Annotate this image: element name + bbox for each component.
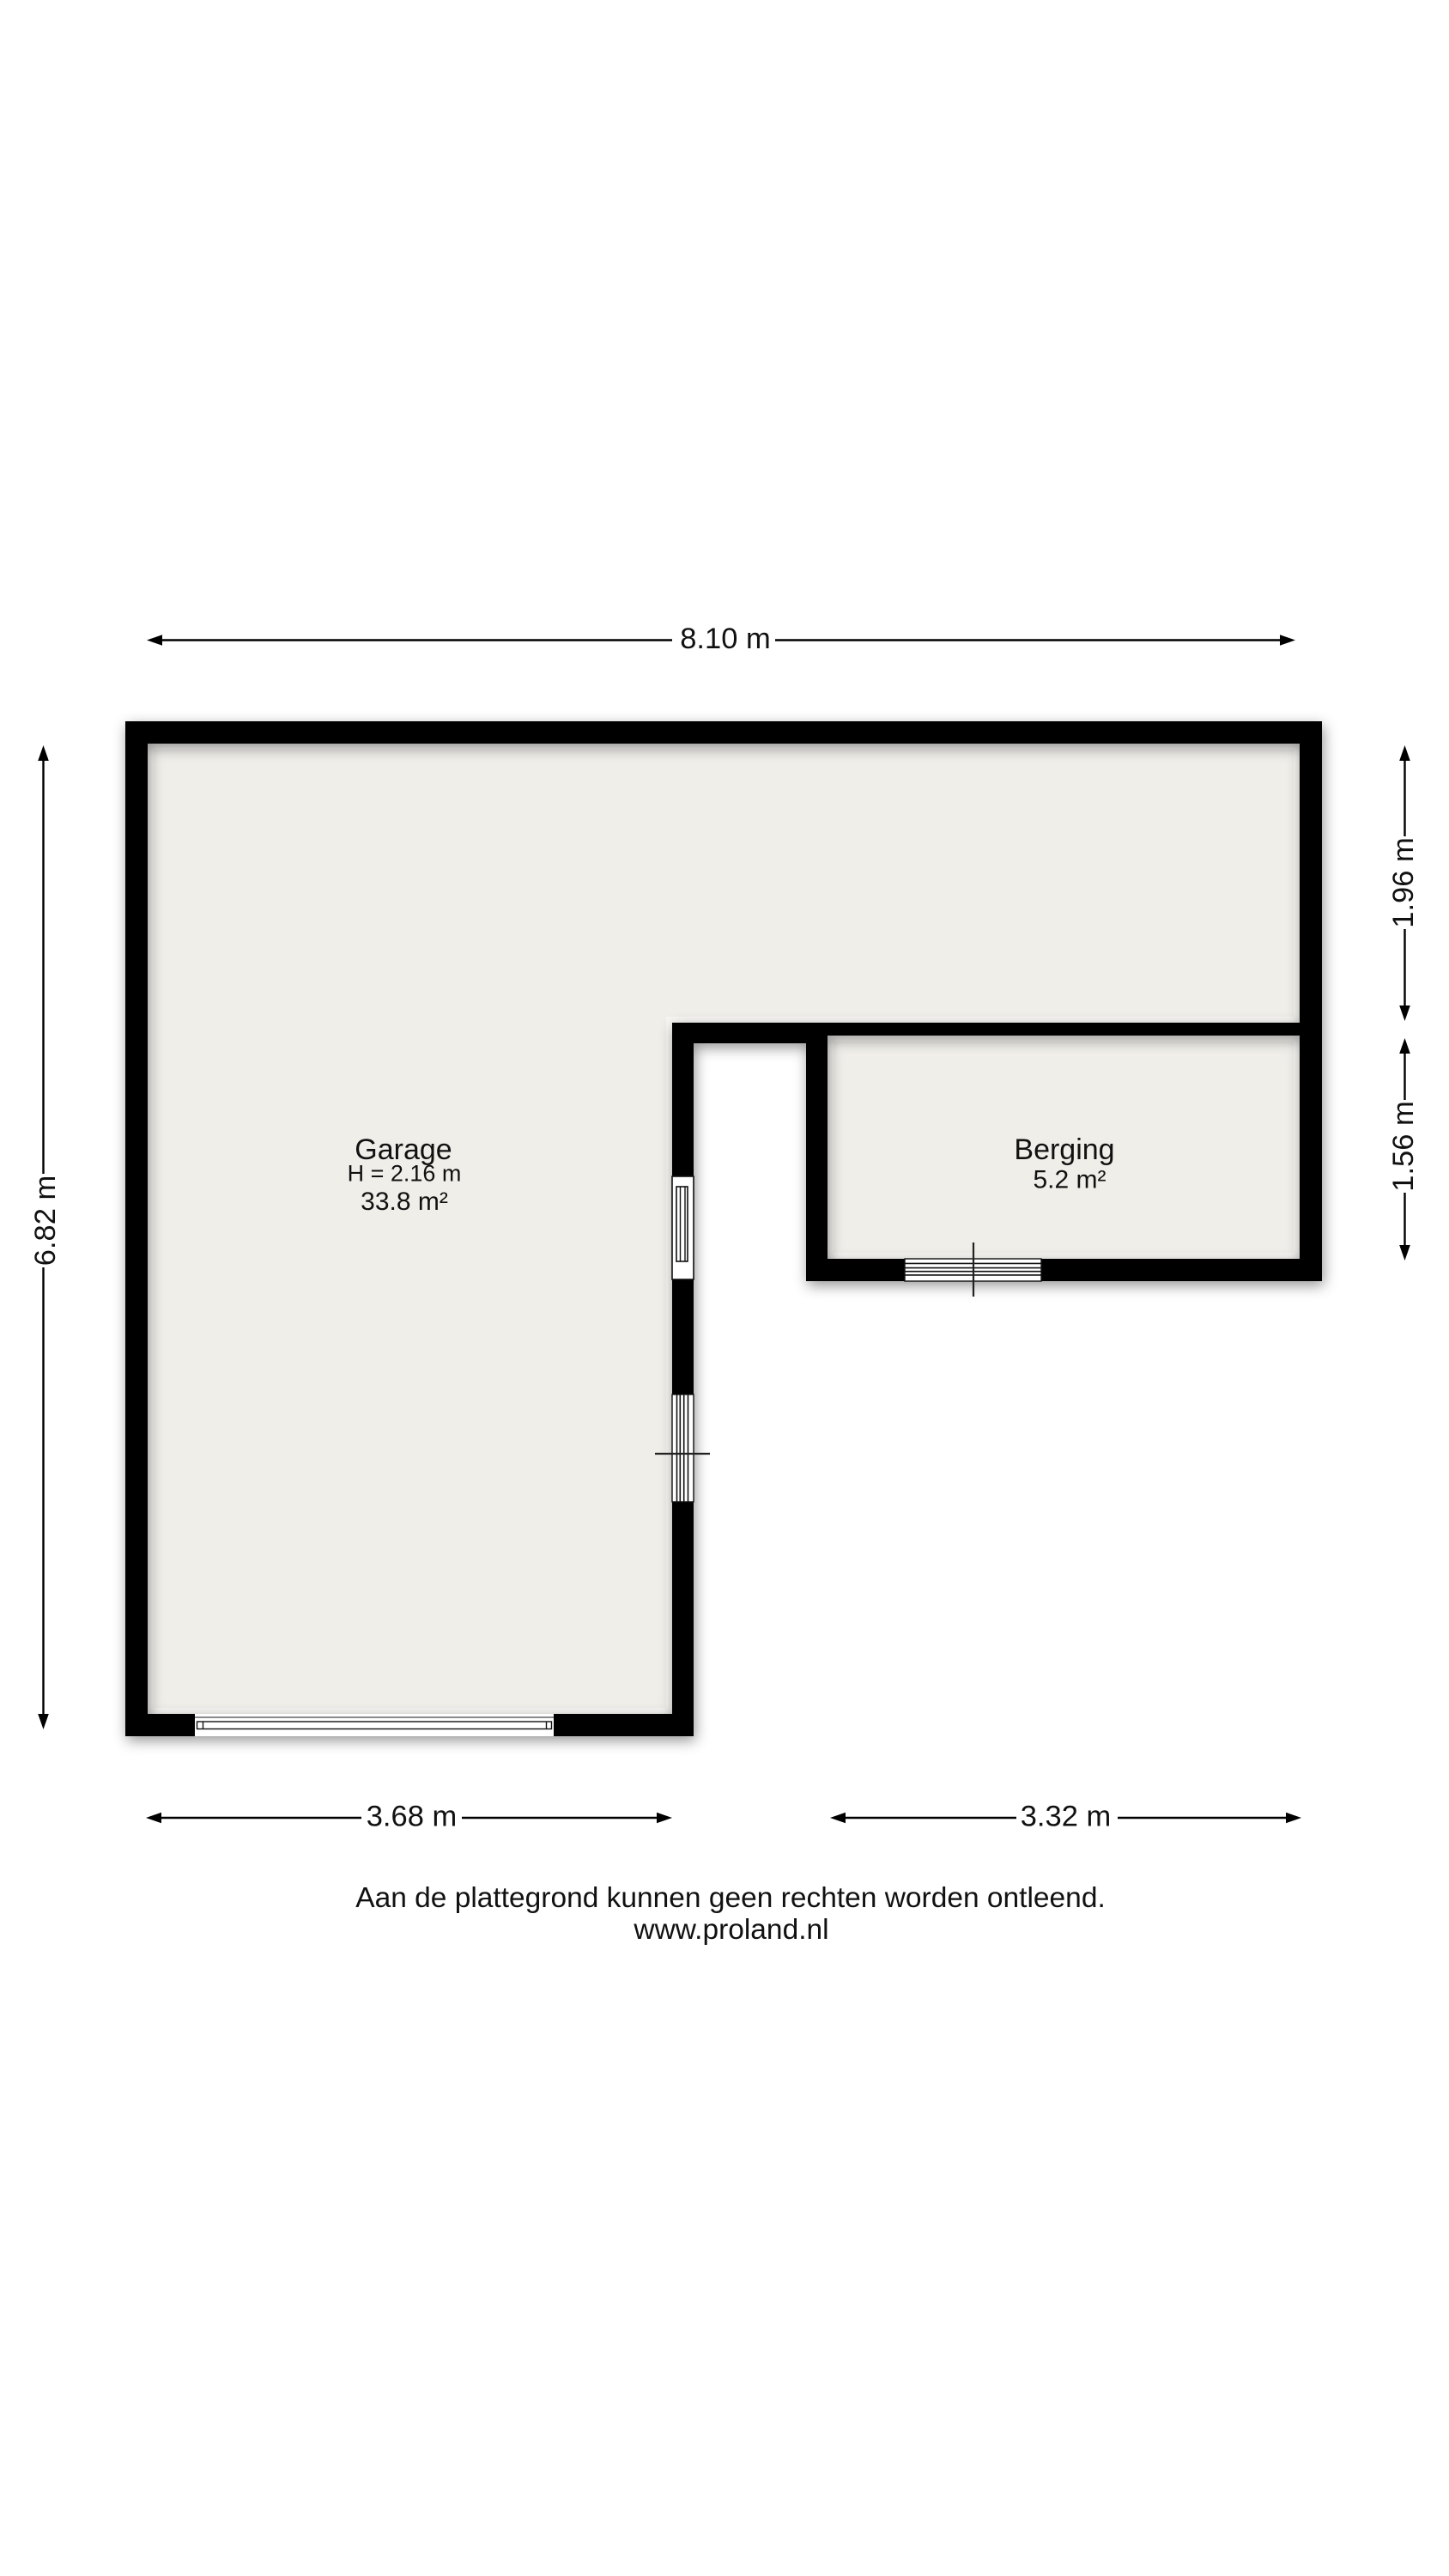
svg-text:1.96 m: 1.96 m [1387, 837, 1420, 927]
svg-text:3.32 m: 3.32 m [1021, 1801, 1111, 1833]
svg-text:3.68 m: 3.68 m [367, 1801, 457, 1833]
svg-text:Aan de plattegrond kunnen geen: Aan de plattegrond kunnen geen rechten w… [355, 1882, 1106, 1914]
svg-text:www.proland.nl: www.proland.nl [633, 1914, 828, 1946]
svg-text:Berging: Berging [1014, 1133, 1114, 1166]
svg-text:33.8 m²: 33.8 m² [361, 1188, 448, 1216]
svg-text:H = 2.16 m: H = 2.16 m [348, 1161, 462, 1187]
svg-text:6.82 m: 6.82 m [29, 1176, 62, 1266]
svg-text:8.10 m: 8.10 m [680, 623, 770, 655]
svg-text:5.2 m²: 5.2 m² [1033, 1166, 1106, 1194]
svg-text:1.56 m: 1.56 m [1387, 1101, 1420, 1191]
